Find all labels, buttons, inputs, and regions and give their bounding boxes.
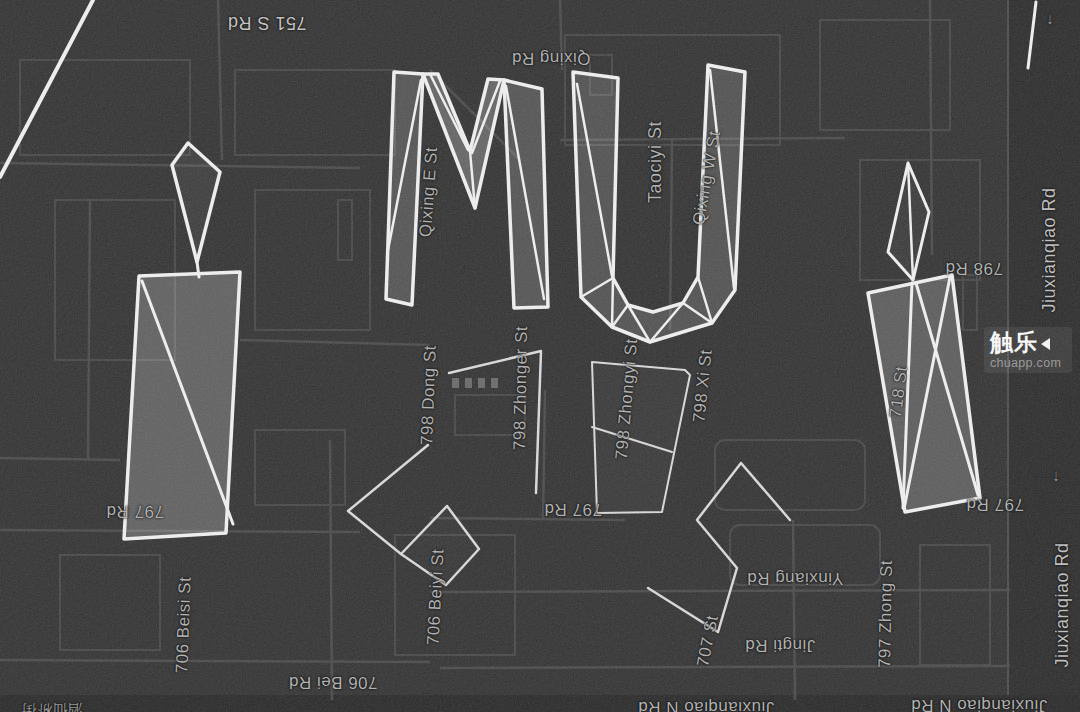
road-label-797-rd-mid: 797 Rd <box>544 499 602 519</box>
labels-layer: 751 S RdQixing RdQixing E StTaociyi StQi… <box>0 0 1080 712</box>
road-label-partial-cjk: 酒仙桥街 <box>21 700 83 712</box>
road-label-qixing-e-st: Qixing E St <box>416 146 442 238</box>
road-label-798-zhonger-st: 798 Zhonger St <box>510 326 532 451</box>
road-label-707-st: 707 St <box>693 613 723 668</box>
watermark: 触乐 chuapp.com <box>984 327 1072 373</box>
road-label-yinxiang-rd: Yinxiang Rd <box>747 568 844 588</box>
road-label-798-rd: 798 Rd <box>945 258 1003 278</box>
road-label-706-beiyi-st: 706 Beiyi St <box>423 548 448 646</box>
map-canvas[interactable]: 751 S RdQixing RdQixing E StTaociyi StQi… <box>0 0 1080 712</box>
play-triangle-icon <box>1041 338 1050 350</box>
road-label-jiuxianqiao-rd-bottom: Jiuxianqiao Rd <box>1052 542 1073 667</box>
road-label-798-dong-st: 798 Dong St <box>417 345 440 446</box>
one-way-arrow-icon-top: ↓ <box>1046 10 1055 28</box>
watermark-url: chuapp.com <box>990 356 1070 370</box>
road-label-751-s-rd: 751 S Rd <box>227 12 306 33</box>
road-label-jiuxianqiao-rd-top: Jiuxianqiao Rd <box>1039 187 1060 312</box>
road-label-798-zhongyi-st: 798 Zhongyi St <box>612 338 643 461</box>
road-label-qixing-w-st: Qixing W St <box>689 129 725 226</box>
road-label-798-xi-st: 798 Xi St <box>689 348 717 423</box>
road-label-718-st: 718 St <box>886 365 912 419</box>
road-label-706-bei-rd: 706 Bei Rd <box>288 672 377 692</box>
road-label-qixing-rd: Qixing Rd <box>511 48 590 68</box>
one-way-arrow-icon-mid: ↓ <box>1052 467 1061 485</box>
road-label-taociyi-st: Taociyi St <box>645 121 666 203</box>
road-label-jiuxianqiao-n-rd-right: Jiuxianqiao N Rd <box>911 695 1048 712</box>
road-label-797-zhong-st: 797 Zhong St <box>875 560 897 668</box>
road-label-797-rd-right: 797 Rd <box>966 494 1024 514</box>
road-label-jingti-rd: Jingti Rd <box>745 635 816 655</box>
road-label-jiuxianqiao-n-rd-center: Jiuxianqiao N Rd <box>638 697 775 712</box>
road-label-706-beisi-st: 706 Beisi St <box>172 576 195 673</box>
road-label-797-rd-left: 797 Rd <box>106 501 164 521</box>
chuapp-logo: 触乐 <box>990 331 1038 354</box>
